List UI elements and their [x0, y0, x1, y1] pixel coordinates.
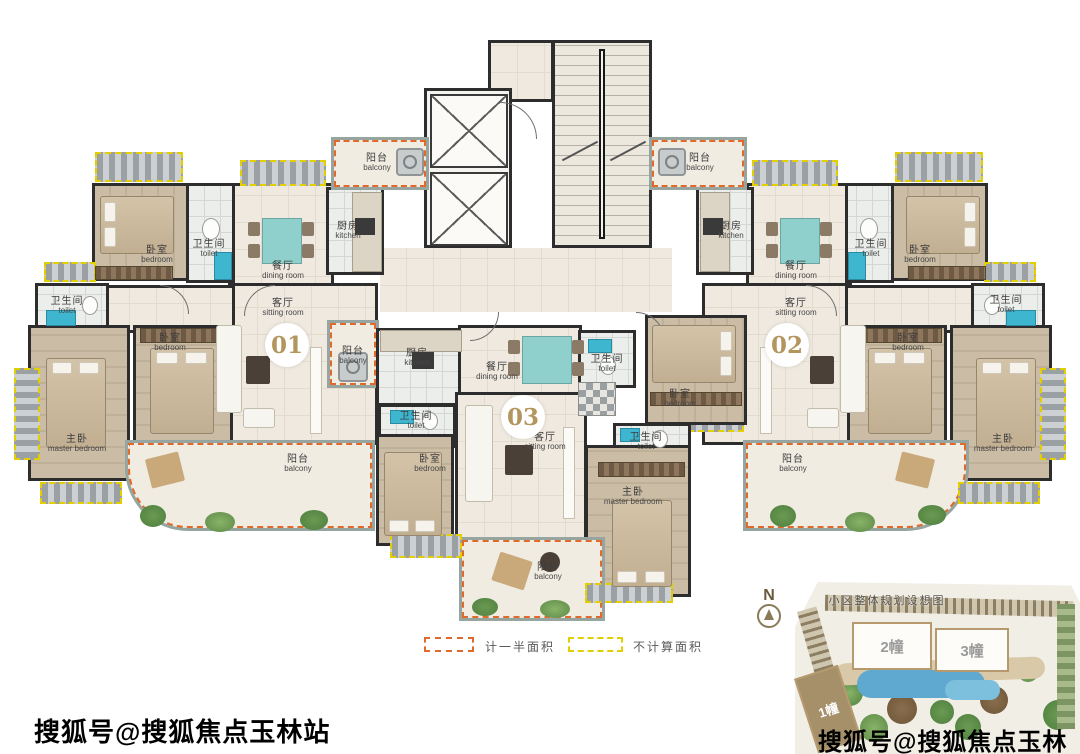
plant — [845, 512, 875, 532]
room-label-bedroom: 卧室bedroom — [141, 245, 173, 265]
chair — [766, 222, 778, 236]
plant — [918, 505, 946, 525]
room-label-sitting: 客厅sitting room — [775, 298, 816, 318]
tree — [887, 694, 917, 724]
wardrobe — [598, 462, 685, 477]
chair — [302, 244, 314, 258]
building-2-label: 2幢 — [880, 636, 903, 657]
sink — [588, 339, 612, 353]
plant — [140, 505, 166, 527]
coffee-table — [246, 356, 270, 384]
building-2: 2幢 — [852, 622, 932, 670]
room-label-toilet: 卫生间toilet — [400, 411, 433, 431]
wardrobe — [908, 266, 986, 280]
building-3-label: 3幢 — [960, 640, 983, 661]
room-label-dining: 餐厅dining room — [476, 362, 518, 382]
bay-window — [95, 152, 183, 182]
bay-window — [984, 262, 1036, 282]
room-label-bedroom: 卧室bedroom — [154, 333, 186, 353]
bed — [868, 348, 932, 434]
wardrobe — [95, 266, 173, 280]
chair — [766, 244, 778, 258]
compass-dial-icon — [757, 604, 781, 628]
room-label-kitchen: 厨房kitchen — [335, 221, 360, 241]
room-label-master-bedroom: 主卧master bedroom — [974, 434, 1032, 454]
room-label-bedroom: 卧室bedroom — [664, 389, 696, 409]
bay-window — [44, 262, 96, 282]
elevator-icon — [430, 172, 508, 246]
room-label-toilet: 卫生间toilet — [855, 239, 888, 259]
room-label-bedroom: 卧室bedroom — [904, 245, 936, 265]
bay-window — [390, 534, 462, 558]
building-3: 3幢 — [935, 628, 1009, 672]
bay-window — [1040, 368, 1066, 460]
elevator-icon — [430, 94, 508, 168]
unit-badge-02: 02 — [765, 323, 809, 367]
dining-table — [262, 218, 302, 264]
room-label-kitchen: 厨房kitchen — [404, 348, 429, 368]
unit-badge-01: 01 — [265, 323, 309, 367]
chair — [572, 362, 584, 376]
toilet-fixture — [202, 218, 220, 240]
dining-table — [780, 218, 820, 264]
watermark-bottom-right: 搜狐号@搜狐焦点玉林站 — [818, 722, 1080, 754]
armchair — [243, 408, 275, 428]
unit-badge-03: 03 — [501, 395, 545, 439]
stair-rail — [599, 49, 605, 239]
room-label-balcony: 阳台balcony — [779, 454, 807, 474]
corridor — [380, 248, 672, 312]
sofa — [840, 325, 866, 413]
room-label-toilet: 卫生间toilet — [591, 354, 624, 374]
legend-half-area-swatch — [424, 637, 474, 652]
checker-floor — [578, 382, 616, 416]
tree-band — [1057, 604, 1075, 729]
room-label-balcony: 阳台balcony — [284, 454, 312, 474]
chair — [820, 222, 832, 236]
bay-window — [14, 368, 40, 460]
bed — [150, 348, 214, 434]
sofa — [216, 325, 242, 413]
chair — [248, 244, 260, 258]
bed — [612, 500, 672, 587]
room-label-toilet: 卫生间toilet — [51, 296, 84, 316]
door-arc — [500, 102, 537, 139]
room-label-dining: 餐厅dining room — [775, 261, 817, 281]
room-label-dining: 餐厅dining room — [262, 261, 304, 281]
watermark-bottom-left: 搜狐号@搜狐焦点玉林站 — [34, 712, 330, 749]
room-label-toilet: 卫生间toilet — [193, 239, 226, 259]
plant — [770, 505, 796, 527]
ac-unit-icon — [396, 148, 424, 176]
plant — [472, 598, 498, 616]
room-label-kitchen: 厨房kitchen — [718, 221, 743, 241]
legend-no-area-label: 不计算面积 — [633, 638, 703, 655]
ac-unit-icon — [658, 148, 686, 176]
room-label-bedroom: 卧室bedroom — [892, 333, 924, 353]
bay-window — [752, 160, 838, 186]
armchair — [807, 408, 839, 428]
room-label-bedroom: 卧室bedroom — [414, 454, 446, 474]
bay-window — [895, 152, 983, 182]
room-label-master-bedroom: 主卧master bedroom — [604, 487, 662, 507]
sofa — [465, 405, 493, 502]
room-label-toilet: 卫生间toilet — [630, 432, 663, 452]
legend-no-area-swatch — [568, 637, 623, 652]
room-label-balcony: 阳台balcony — [339, 346, 367, 366]
bay-window — [240, 160, 326, 186]
water-feature — [945, 680, 1000, 700]
coffee-table — [810, 356, 834, 384]
chair — [248, 222, 260, 236]
room-label-balcony: 阳台balcony — [534, 562, 562, 582]
chair — [302, 222, 314, 236]
building-1-label: 1幢 — [815, 697, 840, 721]
room-label-balcony: 阳台balcony — [363, 153, 391, 173]
siteplan-title: 小区整体规划设想图 — [827, 592, 947, 608]
toilet-fixture — [860, 218, 878, 240]
dining-table — [522, 336, 572, 384]
legend-half-area-label: 计一半面积 — [485, 638, 555, 655]
floorplan-canvas: 卧室bedroom 卫生间toilet 厨房kitchen 餐厅dining r… — [0, 0, 1080, 754]
chair — [508, 340, 520, 354]
tv-cabinet — [310, 347, 322, 434]
bed — [652, 325, 736, 383]
plant — [300, 510, 328, 530]
bay-window — [958, 482, 1040, 504]
room-label-master-bedroom: 主卧master bedroom — [48, 434, 106, 454]
chair — [820, 244, 832, 258]
tree — [930, 700, 954, 724]
chair — [572, 340, 584, 354]
toilet-fixture — [82, 296, 98, 315]
north-label: N — [757, 588, 781, 604]
bay-window — [40, 482, 122, 504]
plant — [205, 512, 235, 532]
north-compass-icon: N — [757, 588, 781, 633]
room-label-toilet: 卫生间toilet — [990, 295, 1023, 315]
plant — [540, 600, 570, 618]
room-label-sitting: 客厅sitting room — [262, 298, 303, 318]
room-label-balcony: 阳台balcony — [686, 153, 714, 173]
